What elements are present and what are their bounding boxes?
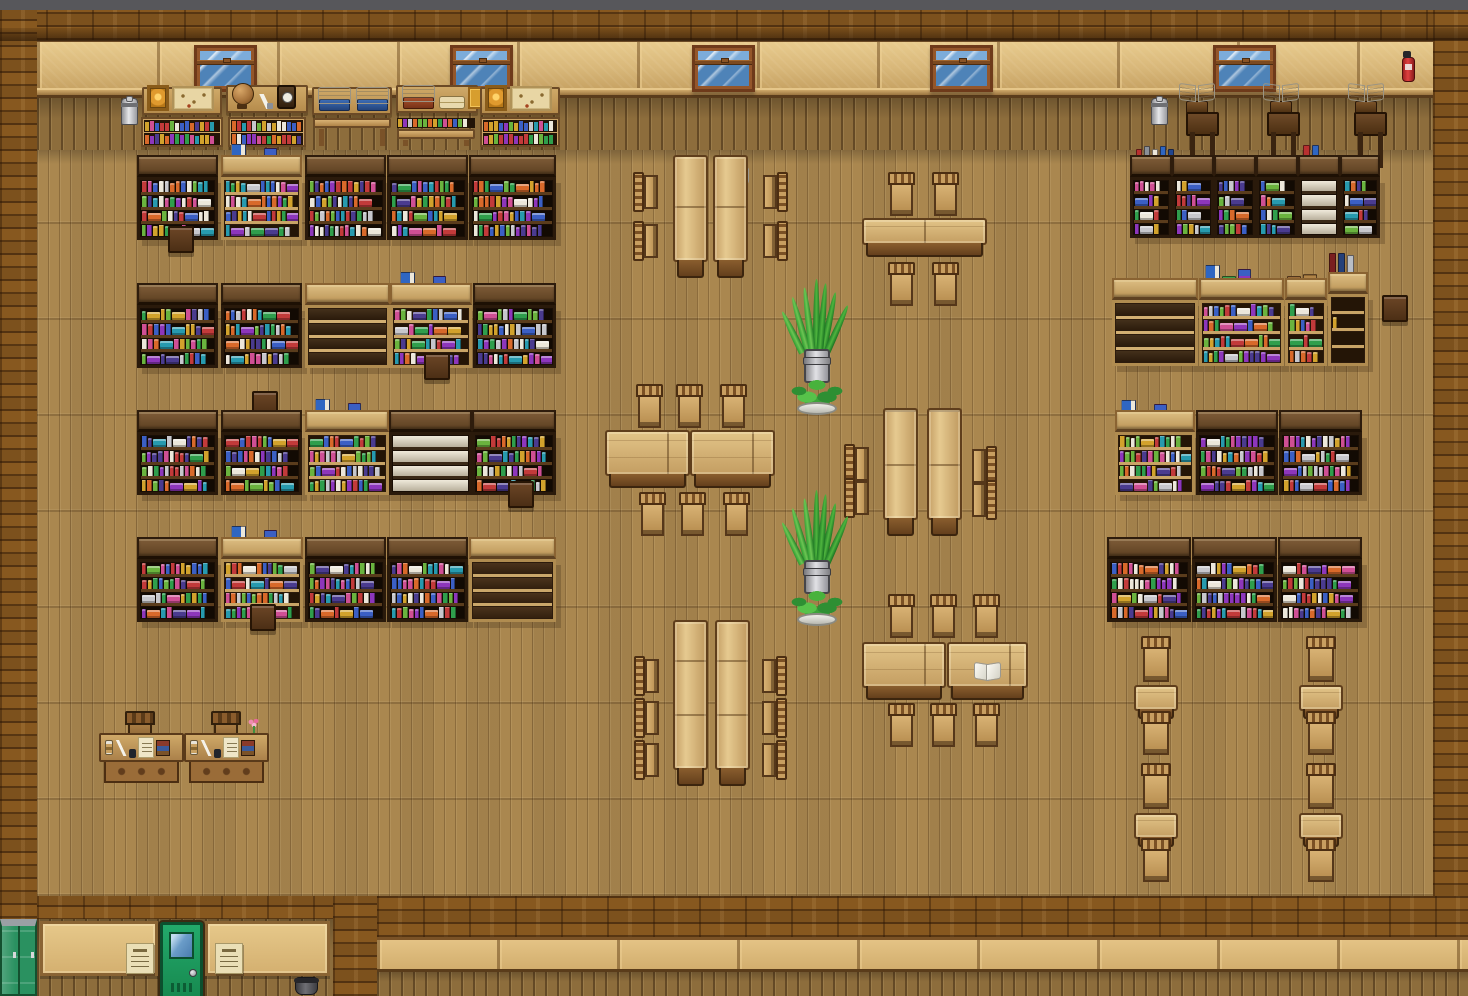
shelf-row	[141, 339, 214, 353]
chair[interactable]	[1306, 636, 1336, 682]
chair[interactable]	[676, 384, 703, 428]
chair[interactable]	[762, 698, 787, 738]
stacked-books	[360, 610, 373, 618]
window-glass	[698, 51, 749, 86]
stool[interactable]	[1382, 295, 1408, 322]
book-spine	[1207, 466, 1211, 477]
chair[interactable]	[888, 172, 915, 216]
lectern[interactable]	[1347, 84, 1385, 114]
book-spine	[1303, 466, 1307, 476]
book-spine	[279, 227, 284, 236]
book-spine	[449, 593, 453, 604]
book-spine	[493, 212, 497, 221]
book-spine	[1225, 224, 1229, 234]
book-spine	[1145, 580, 1150, 589]
book-spine	[489, 355, 493, 364]
stacked-books	[414, 213, 427, 221]
shelf-row	[1203, 351, 1280, 363]
bstand-blue-icon	[317, 87, 352, 111]
reading-table[interactable]	[673, 620, 708, 770]
book-spine	[420, 607, 424, 618]
bookshelf[interactable]	[1278, 537, 1362, 622]
book-spine	[1189, 224, 1194, 234]
mini-book	[160, 134, 164, 144]
book-spine	[1242, 436, 1247, 447]
reading-table[interactable]	[690, 430, 775, 476]
book-spine	[494, 324, 498, 335]
chair[interactable]	[679, 492, 706, 536]
chair-back	[930, 594, 957, 607]
book-spine	[515, 451, 519, 462]
book-spine	[530, 339, 535, 350]
book-spine	[240, 438, 245, 447]
shelf-row	[1116, 351, 1194, 363]
chair[interactable]	[720, 384, 747, 428]
globe-icon	[231, 83, 253, 109]
writing-desk[interactable]	[184, 733, 269, 783]
book-spine	[1177, 593, 1181, 604]
bookshelf[interactable]	[1298, 155, 1340, 238]
book-spine	[409, 324, 414, 335]
bookshelf-top	[305, 537, 386, 559]
book-spine	[1284, 436, 1289, 447]
book-spine	[181, 594, 185, 603]
book-spine	[232, 563, 237, 574]
book-spine	[285, 227, 290, 236]
stacked-books	[190, 454, 203, 462]
book-spine	[326, 480, 330, 491]
book-spine	[1239, 578, 1244, 589]
bookshelf[interactable]	[1214, 155, 1256, 238]
bookshelf[interactable]	[305, 410, 389, 495]
book-spine	[1264, 335, 1268, 347]
bookshelf[interactable]	[137, 537, 218, 622]
bookshelf-top	[1112, 278, 1198, 300]
shelf-row	[1289, 304, 1323, 319]
bookshelf[interactable]	[473, 283, 556, 368]
reading-table[interactable]	[927, 408, 962, 520]
book-spine	[265, 578, 269, 589]
book-spine	[478, 353, 483, 364]
bookshelf[interactable]	[221, 283, 302, 368]
chair[interactable]	[888, 262, 915, 306]
book-spine	[196, 326, 201, 335]
book-spine	[1166, 451, 1170, 462]
book-spine	[1177, 224, 1182, 234]
book-spine	[164, 451, 169, 462]
book-spine	[541, 480, 546, 491]
shelf-row	[1282, 563, 1358, 577]
book-spine	[203, 482, 207, 491]
book-spine	[431, 339, 436, 350]
bookshelf[interactable]	[305, 155, 386, 240]
display-bench[interactable]	[312, 117, 392, 147]
book-spine	[370, 593, 375, 604]
mini-book	[297, 122, 301, 131]
book-spine	[428, 564, 433, 574]
book-spine	[356, 451, 361, 462]
book-spine	[267, 196, 271, 207]
book-spine	[281, 182, 286, 192]
book-spine	[350, 227, 355, 236]
bookshelf-top	[221, 155, 302, 177]
book-spine	[320, 578, 325, 589]
book-spine	[286, 326, 291, 335]
table-base	[609, 474, 686, 488]
chair[interactable]	[763, 221, 788, 261]
book-spine	[420, 578, 424, 589]
screen-top-bar	[0, 0, 1468, 10]
chair[interactable]	[844, 478, 869, 518]
book-spine	[1318, 593, 1322, 604]
reading-table[interactable]	[862, 642, 946, 688]
bookshelf[interactable]	[1130, 155, 1172, 238]
stool[interactable]	[508, 481, 534, 508]
mini-book	[170, 134, 174, 144]
stool[interactable]	[250, 604, 276, 631]
chair[interactable]	[633, 172, 658, 212]
green-door[interactable]	[160, 922, 203, 996]
shelf-row	[141, 480, 214, 491]
book-spine	[248, 211, 252, 222]
book-spine	[142, 480, 146, 491]
chair[interactable]	[888, 594, 915, 638]
right-brick-wall	[1433, 10, 1468, 937]
brick-shadow	[0, 28, 1468, 41]
bookshelf-top	[1328, 272, 1368, 294]
book-spine	[142, 563, 146, 574]
book-spine	[336, 467, 340, 476]
book-spine	[479, 225, 483, 236]
bench-legs	[403, 140, 469, 146]
stool[interactable]	[424, 353, 450, 380]
reading-table[interactable]	[713, 155, 748, 262]
stacked-books	[1269, 339, 1280, 347]
chair[interactable]	[1306, 838, 1336, 882]
book-spine	[170, 183, 175, 192]
book-spine	[1159, 607, 1164, 618]
chair[interactable]	[634, 698, 659, 738]
chair[interactable]	[930, 594, 957, 638]
stacked-books	[437, 581, 450, 589]
mini-book	[529, 135, 533, 144]
bookshelf[interactable]	[137, 410, 218, 495]
chair-seat	[855, 447, 869, 481]
chair[interactable]	[1141, 763, 1171, 809]
bookshelf-top	[1214, 155, 1256, 177]
bookshelf[interactable]	[469, 537, 556, 622]
stacked-books	[1340, 595, 1353, 603]
book-spine	[364, 480, 368, 491]
book-spine	[1294, 608, 1299, 618]
book-spine	[342, 181, 347, 192]
reading-table[interactable]	[862, 218, 987, 245]
book-spine	[246, 578, 250, 589]
book-spine	[161, 354, 165, 364]
book-spine	[268, 437, 272, 447]
book-spine	[503, 309, 508, 320]
chair[interactable]	[973, 703, 1000, 747]
book-spine	[316, 466, 321, 477]
book-spine	[498, 211, 503, 221]
shelf-row	[1200, 436, 1274, 450]
book-spine	[1219, 197, 1224, 206]
book-spine	[338, 197, 342, 207]
shelf-row	[1302, 181, 1336, 194]
bookshelf[interactable]	[221, 410, 302, 495]
book-spine	[1230, 224, 1235, 234]
chair[interactable]	[888, 703, 915, 747]
book-spine	[1214, 306, 1219, 316]
stacked-books	[170, 483, 183, 491]
display-bench[interactable]	[396, 117, 476, 147]
book-spine	[180, 453, 184, 462]
book-spine	[1215, 338, 1220, 347]
book-spine	[202, 339, 207, 350]
book-spine	[231, 326, 235, 335]
book-spine	[535, 354, 540, 364]
chair[interactable]	[636, 384, 663, 428]
chair-seat	[638, 397, 661, 428]
shelf-row	[309, 353, 386, 364]
book-spine	[242, 309, 246, 320]
bookshelf-body	[1107, 559, 1191, 622]
book-spine	[1176, 436, 1181, 447]
book-spine	[1289, 607, 1293, 618]
book-rack[interactable]	[141, 117, 223, 147]
shelf-row	[1200, 466, 1274, 480]
bookshelf[interactable]	[305, 537, 386, 622]
book-spine	[1280, 181, 1285, 191]
chair[interactable]	[1141, 711, 1171, 755]
shelf-row	[1289, 335, 1323, 350]
book-spine	[1208, 593, 1212, 603]
book-spine	[236, 324, 240, 335]
reading-table[interactable]	[715, 620, 750, 770]
reading-table[interactable]	[883, 408, 918, 520]
book-spine	[513, 466, 518, 477]
lectern[interactable]	[1262, 84, 1300, 114]
bookshelf[interactable]	[1285, 278, 1327, 366]
book-spine	[400, 353, 404, 364]
book-spine	[445, 181, 449, 192]
book-spine	[369, 466, 374, 477]
bookshelf[interactable]	[1115, 410, 1195, 495]
book-spine	[538, 466, 542, 477]
bookshelf-top	[390, 283, 472, 305]
book-spine	[201, 579, 205, 589]
reading-table[interactable]	[1134, 685, 1178, 711]
book-spine	[315, 580, 319, 589]
book-spine	[191, 324, 195, 335]
book-spine	[148, 196, 152, 207]
book-rack[interactable]	[480, 117, 560, 147]
quill-icon	[256, 94, 274, 109]
book-spine	[1209, 321, 1214, 331]
chair[interactable]	[1306, 711, 1336, 755]
book-spine	[142, 311, 146, 320]
book-spine	[1154, 481, 1158, 491]
bookshelf[interactable]	[469, 155, 556, 240]
book-spine	[255, 326, 259, 335]
book-spine	[474, 211, 478, 222]
reading-table[interactable]	[1299, 813, 1343, 839]
shelf-row	[225, 324, 298, 338]
bookshelf[interactable]	[1199, 278, 1284, 366]
book-spine	[195, 353, 200, 364]
book-spine	[1310, 578, 1314, 589]
book-spine	[525, 339, 529, 349]
book-spine	[1201, 451, 1205, 462]
reading-table[interactable]	[1134, 813, 1178, 839]
chair-seat	[1308, 649, 1334, 682]
chair[interactable]	[762, 656, 787, 696]
book-spine	[1297, 593, 1301, 603]
book-spine	[1166, 437, 1170, 447]
chair[interactable]	[634, 740, 659, 780]
book-spine	[411, 196, 416, 207]
bookshelf[interactable]	[137, 283, 218, 368]
shelf-row	[309, 451, 385, 465]
chair[interactable]	[1306, 763, 1336, 809]
book-spine	[397, 608, 402, 618]
chair[interactable]	[639, 492, 666, 536]
reading-table[interactable]	[605, 430, 690, 476]
book-spine	[1182, 210, 1187, 220]
chair-seat	[645, 659, 659, 693]
book-spine	[412, 181, 417, 192]
chair[interactable]	[1141, 636, 1171, 682]
bookshelf[interactable]	[305, 283, 390, 368]
book-spine	[1314, 466, 1318, 477]
book-spine	[474, 197, 478, 207]
book-spine	[196, 467, 200, 476]
bookshelf[interactable]	[1172, 155, 1214, 238]
bookshelf-body	[137, 305, 218, 368]
book-spine	[408, 579, 413, 589]
book-spine	[1333, 580, 1337, 589]
book-spine	[142, 324, 147, 335]
book-spine	[1316, 607, 1321, 618]
book-spine	[1346, 480, 1350, 491]
mini-book	[277, 121, 281, 131]
book-spine	[284, 353, 289, 364]
lectern[interactable]	[1178, 84, 1216, 114]
stacked-books	[368, 228, 381, 236]
book-spine	[392, 211, 396, 222]
book-spine	[147, 480, 152, 491]
mini-book	[448, 119, 452, 127]
stacked-books	[536, 341, 549, 349]
bookshelf[interactable]	[387, 537, 468, 622]
bookshelf[interactable]	[1340, 155, 1380, 238]
bookshelf[interactable]	[1256, 155, 1298, 238]
bookshelf[interactable]	[221, 155, 302, 240]
chair[interactable]	[932, 172, 959, 216]
bookshelf[interactable]	[389, 410, 472, 495]
mini-book	[170, 121, 174, 131]
book-spine	[255, 452, 260, 462]
stacked-books	[1364, 198, 1376, 206]
book-spine	[1140, 181, 1144, 191]
bookshelf[interactable]	[1192, 537, 1277, 622]
chair[interactable]	[1141, 838, 1171, 882]
bookshelf[interactable]	[1107, 537, 1191, 622]
open-book	[974, 663, 1001, 680]
book-spine	[335, 436, 339, 447]
chair[interactable]	[930, 703, 957, 747]
shelf-row	[1134, 224, 1168, 234]
stacked-books	[173, 610, 186, 618]
bookshelf[interactable]	[1328, 272, 1368, 366]
stacked-books	[1197, 566, 1210, 574]
mini-book	[489, 122, 493, 131]
chair-back	[888, 262, 915, 275]
book-spine	[1324, 466, 1329, 477]
notice-poster[interactable]	[215, 943, 243, 974]
book-spine	[310, 563, 315, 574]
locker-cabinet[interactable]	[0, 919, 37, 996]
book-spine	[245, 354, 249, 364]
book-spine	[1155, 437, 1159, 447]
chair[interactable]	[973, 594, 1000, 638]
book-spine	[203, 437, 208, 447]
shelf-row	[473, 578, 552, 592]
book-spine	[310, 578, 314, 589]
book-spine	[1131, 451, 1135, 462]
book-spine	[242, 593, 246, 604]
table-base	[866, 243, 983, 257]
book-spine	[226, 609, 231, 618]
window-latch	[959, 58, 967, 63]
book-spine	[252, 436, 257, 447]
bookshelf-body	[1279, 432, 1362, 495]
chair[interactable]	[932, 262, 959, 306]
reading-table[interactable]	[673, 155, 708, 262]
bookshelf[interactable]	[1112, 278, 1198, 366]
bookshelf[interactable]	[1196, 410, 1278, 495]
stacked-books	[1134, 483, 1147, 491]
book-spine	[1300, 609, 1304, 618]
chair[interactable]	[763, 172, 788, 212]
book-spine	[415, 609, 419, 618]
stacked-books	[442, 341, 455, 349]
book-spine	[1202, 578, 1207, 589]
bookshelf[interactable]	[387, 155, 468, 240]
book-spine	[1254, 466, 1258, 476]
chair[interactable]	[723, 492, 750, 536]
writing-desk[interactable]	[99, 733, 184, 783]
stacked-books	[1236, 212, 1249, 220]
chair[interactable]	[762, 740, 787, 780]
book-spine	[148, 466, 153, 477]
book-spine	[1319, 467, 1323, 476]
book-spine	[153, 578, 158, 589]
chair[interactable]	[633, 221, 658, 261]
library-map	[0, 0, 1468, 996]
stacked-books	[522, 327, 535, 335]
book-spine	[148, 324, 153, 335]
book-spine	[484, 353, 488, 364]
bookshelf[interactable]	[1279, 410, 1362, 495]
reading-table[interactable]	[1299, 685, 1343, 711]
notice-poster[interactable]	[126, 943, 154, 974]
chair[interactable]	[972, 480, 997, 520]
chair[interactable]	[634, 656, 659, 696]
stool[interactable]	[168, 226, 194, 253]
shelf-row	[476, 436, 552, 450]
book-spine	[1290, 320, 1295, 332]
